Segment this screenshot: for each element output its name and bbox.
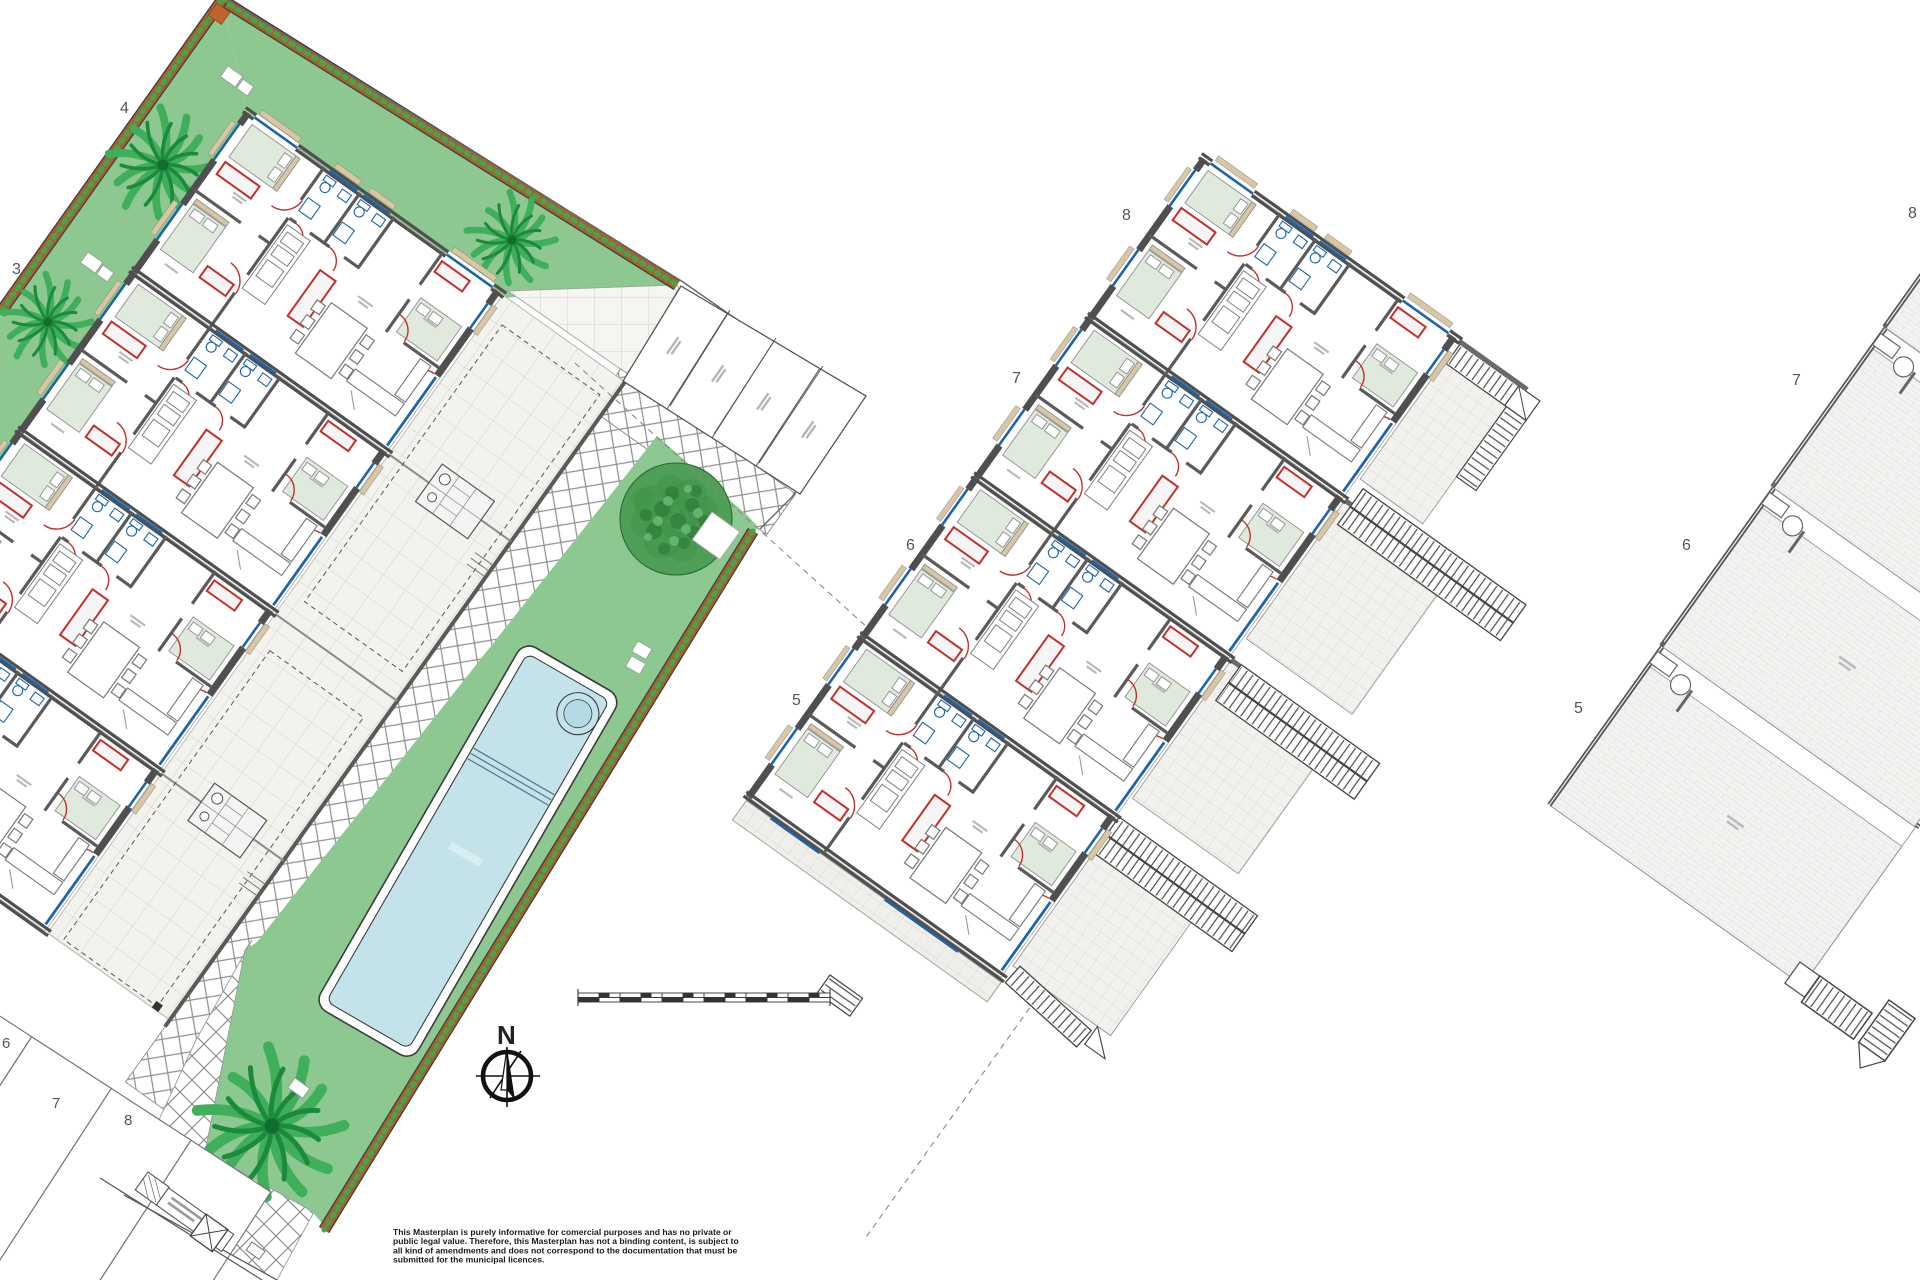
svg-text:8: 8 — [1908, 205, 1917, 222]
svg-text:8: 8 — [1122, 207, 1131, 224]
svg-text:7: 7 — [52, 1095, 60, 1112]
svg-text:5: 5 — [1574, 700, 1583, 717]
svg-text:7: 7 — [1012, 370, 1021, 387]
svg-text:submitted for the municipal li: submitted for the municipal licences. — [393, 1255, 544, 1265]
svg-text:4: 4 — [120, 100, 129, 117]
svg-text:3: 3 — [12, 261, 21, 278]
svg-text:8: 8 — [124, 1112, 132, 1129]
svg-text:6: 6 — [2, 1035, 10, 1052]
svg-text:N: N — [497, 1020, 516, 1050]
svg-text:6: 6 — [1682, 537, 1691, 554]
svg-text:6: 6 — [906, 537, 915, 554]
svg-text:5: 5 — [792, 692, 801, 709]
svg-text:7: 7 — [1792, 372, 1801, 389]
